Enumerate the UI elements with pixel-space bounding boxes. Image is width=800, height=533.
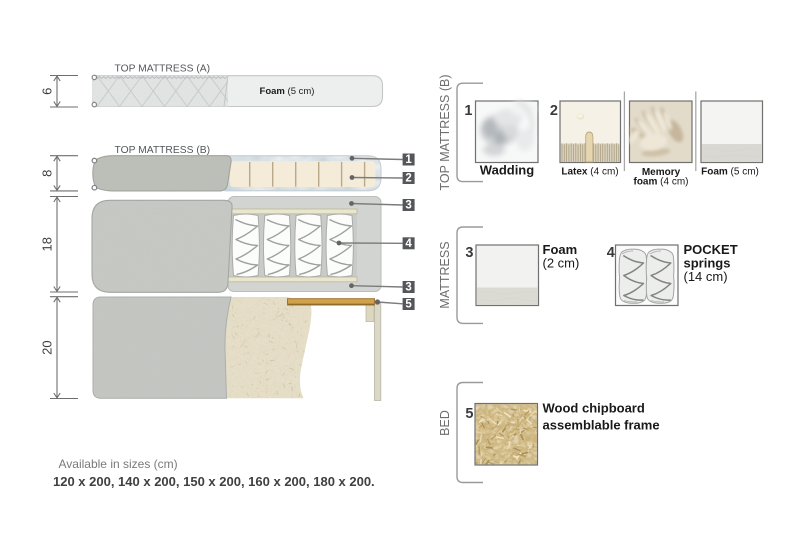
- svg-text:foam (4 cm): foam (4 cm): [633, 177, 688, 188]
- svg-text:Wadding: Wadding: [480, 163, 534, 178]
- svg-text:Wood chipboard: Wood chipboard: [543, 401, 645, 416]
- svg-text:BED: BED: [438, 410, 452, 436]
- svg-text:TOP MATTRESS (B): TOP MATTRESS (B): [438, 75, 452, 191]
- svg-text:5: 5: [465, 406, 473, 422]
- svg-text:4: 4: [405, 238, 412, 250]
- svg-text:6: 6: [40, 88, 55, 95]
- svg-text:1: 1: [464, 103, 472, 119]
- svg-text:Foam (5 cm): Foam (5 cm): [701, 167, 759, 178]
- svg-text:Latex (4 cm): Latex (4 cm): [561, 167, 618, 178]
- svg-text:4: 4: [607, 245, 615, 261]
- svg-text:2: 2: [405, 173, 411, 185]
- svg-text:8: 8: [40, 170, 55, 177]
- svg-text:18: 18: [40, 237, 55, 251]
- svg-text:MATTRESS: MATTRESS: [438, 241, 452, 308]
- svg-text:3: 3: [405, 200, 411, 212]
- svg-text:2: 2: [550, 103, 558, 119]
- svg-text:3: 3: [465, 245, 473, 261]
- svg-text:1: 1: [405, 154, 412, 166]
- svg-text:20: 20: [40, 340, 55, 354]
- svg-text:TOP MATTRESS (B): TOP MATTRESS (B): [115, 145, 211, 156]
- svg-text:(2 cm): (2 cm): [543, 256, 580, 271]
- svg-text:120 x 200, 140 x 200, 150 x 20: 120 x 200, 140 x 200, 150 x 200, 160 x 2…: [53, 474, 375, 489]
- svg-text:assemblable frame: assemblable frame: [543, 418, 660, 433]
- svg-text:5: 5: [405, 299, 412, 311]
- svg-text:TOP MATTRESS (A): TOP MATTRESS (A): [115, 63, 211, 74]
- svg-text:(14 cm): (14 cm): [684, 269, 728, 284]
- svg-text:Foam (5 cm): Foam (5 cm): [260, 86, 315, 97]
- svg-text:3: 3: [405, 282, 411, 294]
- svg-text:Available in sizes (cm): Available in sizes (cm): [59, 457, 178, 471]
